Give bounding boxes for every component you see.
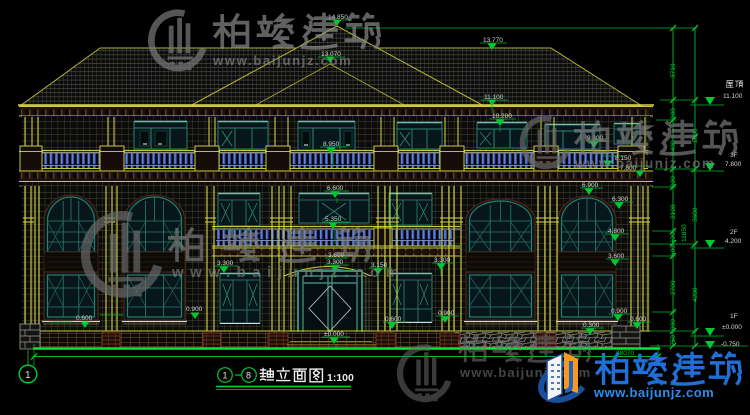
svg-text:1: 1	[223, 371, 228, 381]
svg-text:3.600: 3.600	[608, 253, 625, 260]
svg-text:6.300: 6.300	[612, 196, 629, 203]
svg-text:1: 1	[25, 370, 31, 381]
svg-text:1F: 1F	[730, 313, 738, 320]
svg-text:900: 900	[670, 319, 677, 330]
svg-text:8: 8	[246, 371, 251, 381]
svg-text:600: 600	[670, 232, 677, 243]
svg-text:0.900: 0.900	[438, 310, 455, 317]
svg-text:0.900: 0.900	[611, 308, 628, 315]
svg-text:±0.000: ±0.000	[722, 324, 742, 331]
svg-text:4.800: 4.800	[608, 228, 625, 235]
svg-text:900: 900	[670, 108, 677, 119]
svg-text:-0.750: -0.750	[721, 341, 740, 348]
svg-text:11.100: 11.100	[723, 93, 743, 100]
svg-text:11850: 11850	[681, 224, 688, 242]
svg-text:11.100: 11.100	[484, 94, 504, 101]
svg-text:2100: 2100	[670, 204, 677, 219]
svg-text:900: 900	[670, 176, 677, 187]
svg-text:0.900: 0.900	[186, 306, 203, 313]
svg-text:www.baijunjz.com: www.baijunjz.com	[212, 53, 352, 68]
svg-text:4.200: 4.200	[725, 238, 742, 245]
svg-text:10.200: 10.200	[492, 113, 512, 120]
svg-text:2F: 2F	[730, 229, 738, 236]
svg-text:3600: 3600	[692, 207, 699, 222]
svg-text:5.350: 5.350	[325, 216, 342, 223]
svg-text:0.600: 0.600	[385, 316, 402, 323]
svg-text:750: 750	[670, 335, 677, 346]
svg-text:8.950: 8.950	[323, 141, 340, 148]
svg-text:3710: 3710	[670, 63, 677, 78]
svg-text:4200: 4200	[692, 287, 699, 302]
svg-text:6.600: 6.600	[327, 185, 344, 192]
svg-text:600: 600	[670, 245, 677, 256]
svg-text:0.300: 0.300	[583, 322, 600, 329]
svg-text:www.baijunjz.com: www.baijunjz.com	[171, 264, 405, 281]
svg-text:6.900: 6.900	[582, 182, 599, 189]
svg-text:2700: 2700	[670, 280, 677, 295]
svg-text:1:100: 1:100	[327, 372, 354, 384]
svg-text:0.600: 0.600	[630, 316, 647, 323]
svg-text:www.baijunjz.com: www.baijunjz.com	[574, 156, 716, 171]
svg-text:www.baijunjz.com: www.baijunjz.com	[593, 385, 714, 400]
svg-text:0.600: 0.600	[76, 315, 93, 322]
svg-text:3.300: 3.300	[434, 257, 451, 264]
svg-text:7.800: 7.800	[725, 161, 742, 168]
svg-text:13.770: 13.770	[483, 37, 503, 44]
svg-text:±0.000: ±0.000	[324, 331, 344, 338]
